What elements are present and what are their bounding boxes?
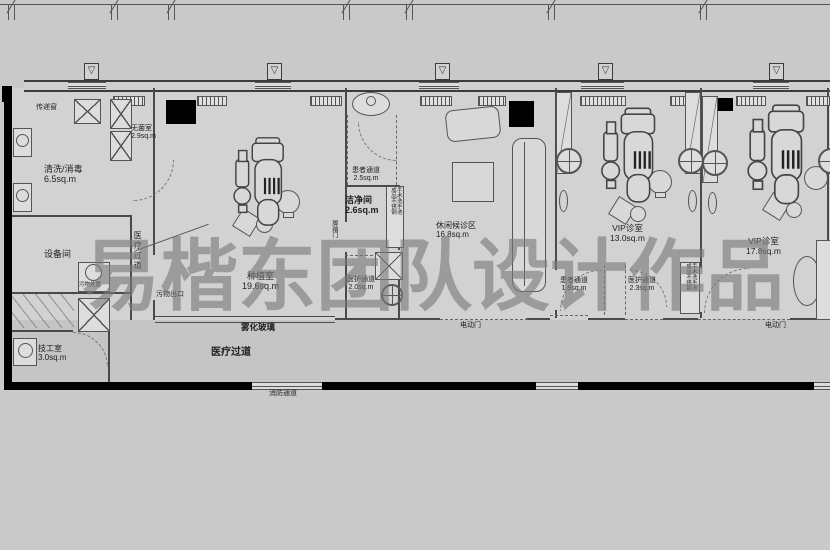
- section-marker-icon: ▽: [435, 63, 450, 80]
- window-segment: [252, 382, 322, 390]
- fire-passage-label: 消防通道: [269, 390, 297, 398]
- column: [2, 86, 12, 102]
- spittoon-icon: [702, 150, 728, 176]
- pass-window-label: 传递窗: [36, 104, 57, 112]
- grid-tick: [343, 4, 350, 20]
- room-label-clean: 洁净间2.6sq.m: [345, 195, 379, 216]
- column: [166, 100, 196, 124]
- passage-dashed-line: [347, 115, 348, 185]
- table-icon: [452, 162, 494, 202]
- partition: [12, 330, 73, 332]
- spittoon-icon: [556, 148, 582, 174]
- bottom-exterior-wall: [4, 382, 830, 390]
- sink-bowl-icon: [16, 189, 29, 202]
- dental-chair-icon: [596, 106, 674, 214]
- handle-icon: [688, 190, 697, 212]
- grid-tick: [111, 4, 118, 20]
- cabinet-strip: [478, 96, 506, 106]
- watermark-text: 易楷东团队设计作品: [82, 214, 784, 326]
- room-label-wash: 清洗/消毒6.5sq.m: [44, 164, 83, 185]
- handle-icon: [559, 190, 568, 212]
- room-label-equipment: 设备间: [44, 249, 71, 259]
- window-segment: [255, 82, 291, 89]
- section-marker-icon: ▽: [84, 63, 99, 80]
- handle-icon: [708, 192, 717, 214]
- stair-hatch: [12, 294, 74, 328]
- window-segment: [68, 82, 106, 89]
- sink-bowl-icon: [16, 134, 29, 147]
- window-segment: [536, 382, 578, 390]
- column: [509, 101, 534, 127]
- room-label-sterile: 无菌室2.9sq.m: [131, 125, 156, 141]
- sink-bowl-icon: [18, 343, 33, 358]
- spittoon-icon: [678, 148, 704, 174]
- pass-window-shaft-icon: [110, 131, 132, 161]
- bottom-corridor-area: [12, 320, 830, 382]
- grid-tick: [168, 4, 175, 20]
- window-segment: [753, 82, 789, 89]
- cabinet-strip: [580, 96, 626, 106]
- floor-plan-canvas: ▽ ▽ ▽ ▽ ▽: [0, 0, 830, 550]
- room-label-technician: 技工室3.0sq.m: [38, 344, 66, 362]
- grid-tick: [548, 4, 555, 20]
- section-marker-icon: ▽: [769, 63, 784, 80]
- dental-chair-icon: [742, 102, 824, 217]
- window-segment: [581, 82, 624, 89]
- cabinet-strip: [197, 96, 227, 106]
- corridor-label-bottom: 医疗过道: [211, 347, 251, 359]
- partition: [108, 330, 110, 382]
- cabinet-strip: [420, 96, 452, 106]
- cabinet-x-icon: [74, 99, 101, 124]
- basin-tap-icon: [366, 96, 376, 106]
- section-marker-icon: ▽: [598, 63, 613, 80]
- grid-tick: [700, 4, 707, 20]
- sofa-icon: [444, 105, 501, 142]
- cabinet-strip: [310, 96, 342, 106]
- section-marker-icon: ▽: [267, 63, 282, 80]
- counter: [816, 240, 830, 320]
- passage-label-patient-mid: 患者通道2.5sq.m: [352, 167, 380, 183]
- pass-window-shaft-icon: [110, 99, 132, 129]
- window-segment: [814, 382, 830, 390]
- grid-tick: [406, 4, 413, 20]
- grid-tick: [8, 4, 15, 20]
- left-exterior-wall: [4, 86, 12, 388]
- window-segment: [419, 82, 459, 89]
